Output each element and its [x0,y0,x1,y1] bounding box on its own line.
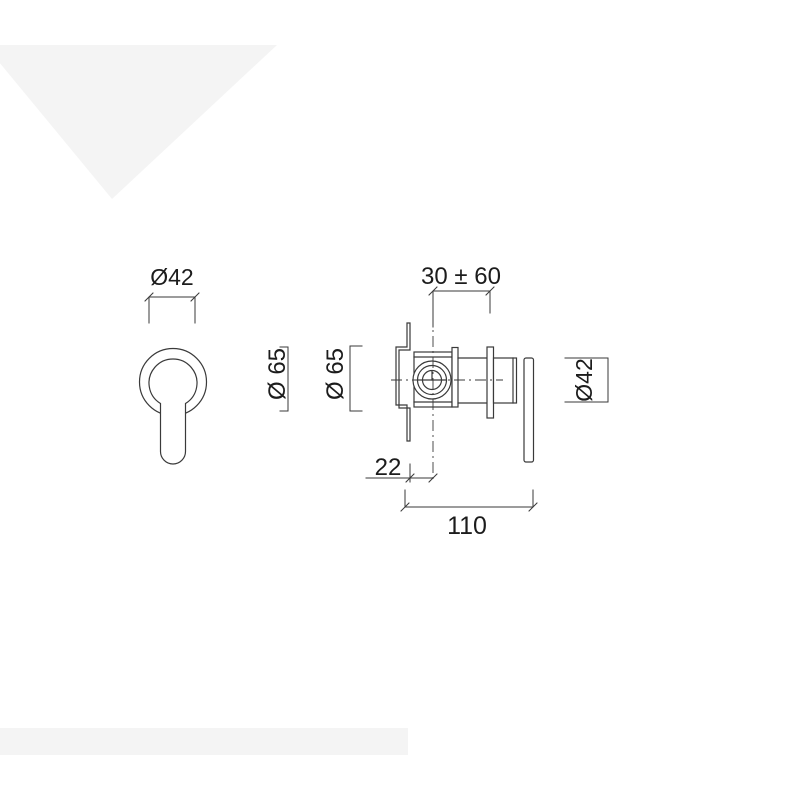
dim-bracket [350,346,362,411]
escutcheon-plate-side [487,347,494,418]
dim-side-trim-diameter: Ø42 [565,358,608,402]
dim-side-plate-diameter: Ø 65 [322,346,362,411]
body-flange-plate [452,348,458,408]
dim-plate-offset: 22 [366,454,437,482]
dim-label-side-trim-diameter: Ø42 [571,358,597,401]
dim-bracket [405,490,533,507]
dim-label-front-handle-diameter: Ø42 [150,264,193,290]
lever-blade-side [524,358,534,462]
dim-label-overall-length: 110 [447,512,487,540]
dim-label-front-plate-diameter: Ø 65 [264,348,291,400]
mounting-bracket [396,323,410,441]
watermark-band [0,728,408,755]
watermark-triangle [0,45,277,199]
dim-front-plate-diameter: Ø 65 [264,347,291,411]
dim-overall-length: 110 [401,490,537,540]
dim-depth-range: 30 ± 60 [421,263,501,327]
drawing-page: Ø42 Ø 65 Ø 65 [0,0,800,800]
dim-label-side-plate-diameter: Ø 65 [322,348,349,400]
side-view: 30 ± 60 22 110 Ø42 [366,263,608,540]
front-view: Ø42 Ø 65 [140,264,292,464]
technical-drawing: Ø42 Ø 65 Ø 65 [0,0,800,800]
dim-bracket [149,297,195,323]
dim-label-depth-range: 30 ± 60 [421,263,501,290]
dim-front-handle-diameter: Ø42 [145,264,199,323]
dim-label-plate-offset: 22 [375,454,402,481]
